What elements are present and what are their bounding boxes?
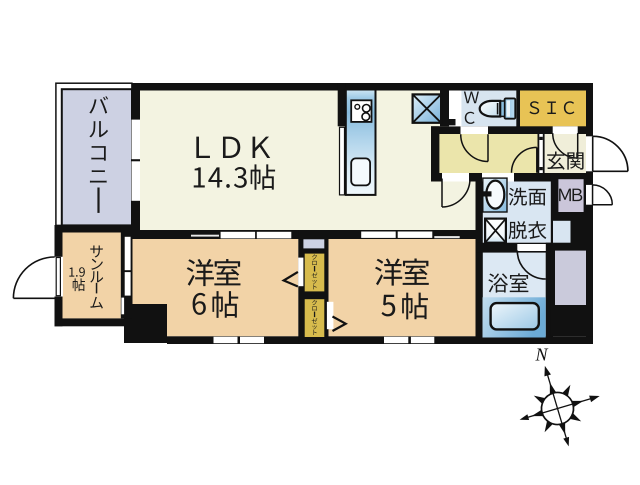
svg-text:N: N bbox=[535, 345, 549, 365]
